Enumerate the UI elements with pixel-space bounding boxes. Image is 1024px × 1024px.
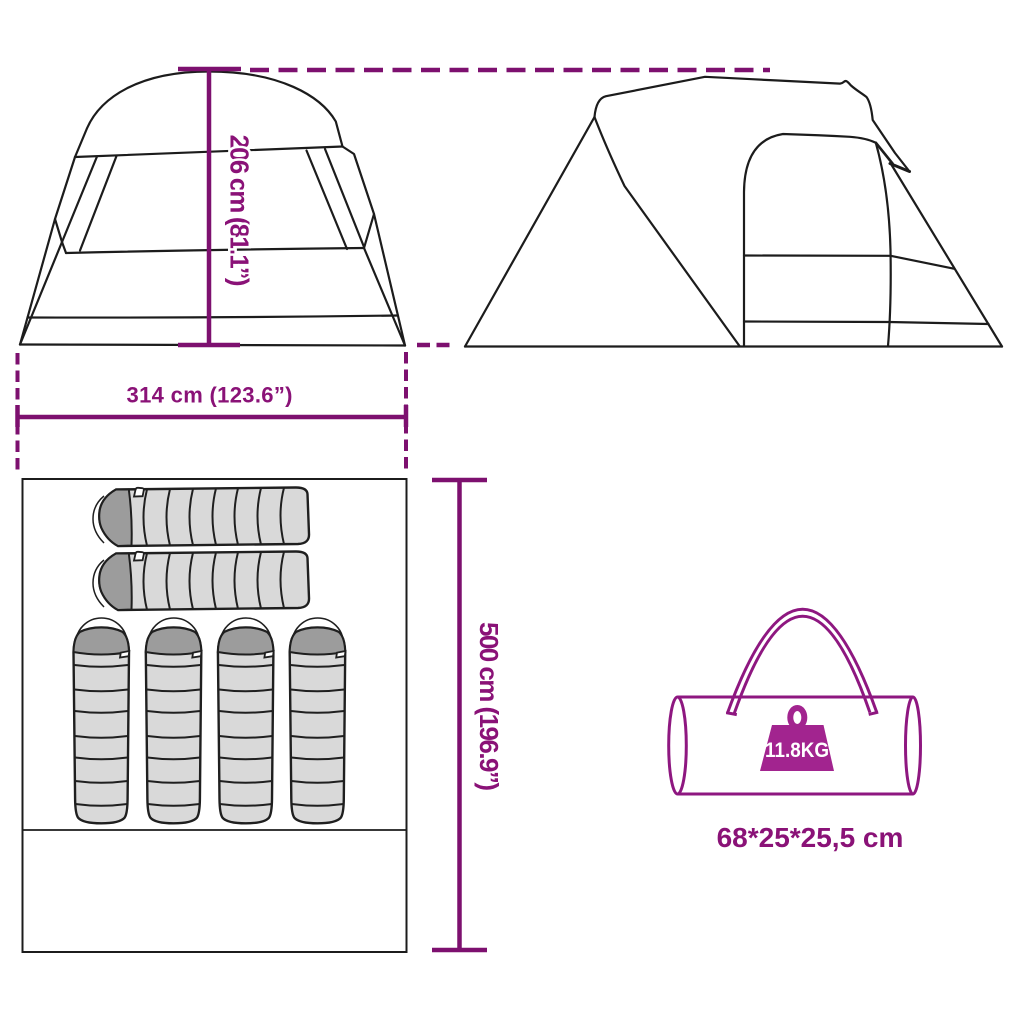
svg-text:500 cm (196.9”): 500 cm (196.9”)	[474, 622, 504, 791]
svg-text:68*25*25,5 cm: 68*25*25,5 cm	[717, 822, 904, 853]
svg-text:314 cm (123.6”): 314 cm (123.6”)	[127, 383, 293, 408]
svg-text:11.8KG: 11.8KG	[765, 739, 829, 762]
svg-text:206 cm (81.1”): 206 cm (81.1”)	[225, 135, 255, 287]
